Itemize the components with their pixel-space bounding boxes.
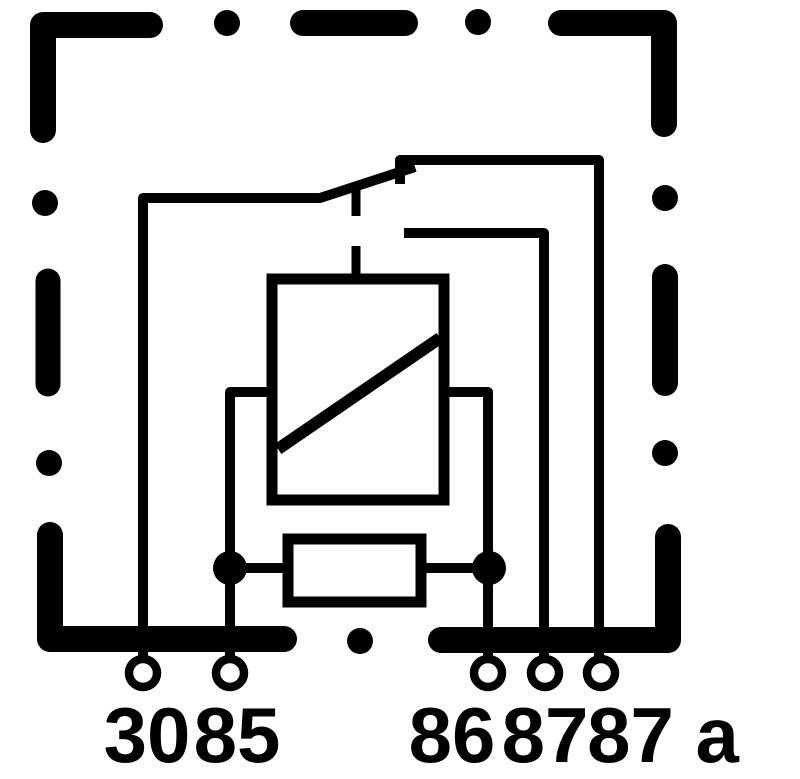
terminal-label-86: 86 xyxy=(409,691,496,779)
terminal-pins xyxy=(129,659,615,687)
housing-bottom-left-corner-dash xyxy=(50,535,284,639)
housing-dot-left-2 xyxy=(36,450,62,476)
housing-dot-left-1 xyxy=(32,190,58,216)
terminal-label-85: 85 xyxy=(194,691,281,779)
terminal-labels: 30 85 86 87 87 a xyxy=(104,691,740,779)
housing-dot-top-1 xyxy=(214,10,240,36)
housing-top-right-corner-dash xyxy=(561,23,664,124)
terminal-ring-85 xyxy=(216,659,244,687)
terminal-label-87: 87 xyxy=(502,691,589,779)
terminal-ring-87a xyxy=(587,659,615,687)
terminal-ring-86 xyxy=(474,659,502,687)
terminal-ring-87 xyxy=(531,659,559,687)
housing-dot-right-1 xyxy=(652,185,678,211)
junction-dot-85 xyxy=(213,551,247,585)
relay-schematic-page: 30 85 86 87 87 a xyxy=(0,0,800,779)
housing-dot-right-2 xyxy=(652,440,678,466)
relay-schematic: 30 85 86 87 87 a xyxy=(0,0,800,779)
junction-dot-86 xyxy=(472,551,506,585)
wire-coil-to-terminal-85 xyxy=(230,392,272,657)
housing-top-left-corner-dash xyxy=(43,25,150,130)
terminal-label-30: 30 xyxy=(104,691,191,779)
wire-coil-to-terminal-86 xyxy=(444,392,488,657)
terminal-label-87a: 87 a xyxy=(587,691,739,779)
terminal-ring-30 xyxy=(129,659,157,687)
housing-dot-bottom xyxy=(347,628,373,654)
housing-dot-top-2 xyxy=(465,9,491,35)
housing-bottom-right-corner-dash xyxy=(441,537,668,640)
resistor-symbol xyxy=(288,539,421,602)
